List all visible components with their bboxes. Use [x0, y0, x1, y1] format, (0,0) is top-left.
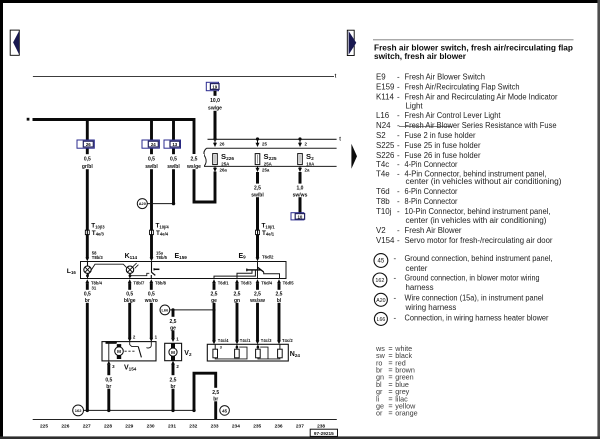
svg-text:bl/ge: bl/ge	[124, 298, 136, 304]
svg-text:t: t	[339, 137, 341, 143]
svg-text:Fresh Air Blower Switch: Fresh Air Blower Switch	[405, 73, 486, 82]
svg-text:or: or	[376, 409, 383, 418]
svg-text:10-Pin Connector, behind instr: 10-Pin Connector, behind instrument pane…	[405, 207, 551, 216]
svg-text:2,5: 2,5	[234, 292, 241, 298]
svg-text:234: 234	[232, 423, 240, 429]
svg-text:2: 2	[133, 335, 136, 340]
svg-text:Fuse 26 in fuse holder: Fuse 26 in fuse holder	[405, 151, 481, 160]
svg-text:sw/bl: sw/bl	[145, 164, 158, 170]
svg-text:Light: Light	[406, 102, 424, 111]
svg-text:T10j/1: T10j/1	[262, 223, 276, 230]
svg-text:N24: N24	[290, 351, 301, 358]
svg-text:harness: harness	[406, 283, 434, 292]
svg-text:24: 24	[151, 142, 156, 147]
svg-text:br: br	[85, 298, 90, 304]
svg-text:E159: E159	[376, 83, 395, 92]
svg-text:br: br	[106, 384, 111, 390]
svg-text:K114: K114	[125, 253, 138, 260]
svg-text:T10j/3: T10j/3	[91, 223, 105, 230]
svg-text:T8b: T8b	[376, 197, 390, 206]
svg-text:10: 10	[297, 214, 302, 219]
svg-text:L16: L16	[376, 111, 390, 120]
svg-text:br: br	[171, 384, 176, 390]
svg-text:center (in vehicles with air c: center (in vehicles with air conditionin…	[406, 216, 547, 225]
svg-text:-: -	[397, 131, 400, 140]
svg-text:-: -	[394, 293, 397, 302]
svg-text:V154: V154	[124, 365, 137, 372]
svg-text:31: 31	[92, 286, 97, 291]
svg-text:V2: V2	[184, 350, 192, 357]
svg-text:225: 225	[40, 423, 48, 429]
svg-text:-: -	[394, 313, 397, 322]
svg-text:19: 19	[212, 85, 217, 90]
svg-text:45: 45	[222, 408, 227, 413]
svg-text:10,0: 10,0	[210, 98, 220, 104]
svg-text:Connection, in wiring harness: Connection, in wiring harness heater blo…	[405, 313, 549, 322]
svg-text:26a: 26a	[220, 168, 228, 173]
svg-text:S226: S226	[376, 151, 395, 160]
svg-text:L66: L66	[377, 317, 386, 323]
svg-text:T8b/5: T8b/5	[156, 255, 168, 260]
svg-text:0,5: 0,5	[148, 292, 155, 298]
svg-text:Fresh Air Blower: Fresh Air Blower	[405, 226, 462, 235]
svg-text:T6d/5: T6d/5	[283, 280, 295, 285]
svg-text:T6d/4: T6d/4	[261, 280, 273, 285]
svg-text:Fresh Air and Recirculating Ai: Fresh Air and Recirculating Air Mode Ind…	[405, 93, 558, 102]
svg-text:wiring harness: wiring harness	[405, 303, 457, 312]
svg-text:T6d/3: T6d/3	[241, 280, 253, 285]
svg-text:-: -	[394, 274, 397, 283]
svg-text:26: 26	[220, 142, 225, 147]
svg-text:V154: V154	[376, 236, 395, 245]
svg-text:-: -	[397, 83, 400, 92]
svg-text:T4e/4: T4e/4	[156, 230, 169, 237]
svg-text:-: -	[397, 93, 400, 102]
svg-text:T4e/3: T4e/3	[92, 230, 105, 237]
svg-text:sw/ws: sw/ws	[293, 192, 308, 198]
svg-text:25a: 25a	[262, 168, 270, 173]
svg-text:T4c/1: T4c/1	[240, 338, 251, 343]
svg-text:Ground connection, behind inst: Ground connection, behind instrument pan…	[405, 254, 553, 263]
svg-text:1: 1	[155, 335, 158, 340]
svg-text:-: -	[397, 226, 400, 235]
svg-text:Wire connection (15a), in inst: Wire connection (15a), in instrument pan…	[405, 293, 544, 302]
svg-text:25A: 25A	[221, 161, 230, 166]
svg-text:232: 232	[189, 423, 197, 429]
svg-text:-: -	[397, 160, 400, 169]
svg-text:229: 229	[125, 423, 133, 429]
svg-text:Fresh Air Blower Series Resist: Fresh Air Blower Series Resistance with …	[405, 121, 558, 130]
svg-text:0,5: 0,5	[105, 378, 112, 384]
svg-text:-: -	[397, 121, 400, 130]
svg-text:1,0: 1,0	[297, 185, 304, 191]
svg-text:=: =	[388, 409, 392, 418]
svg-text:231: 231	[168, 423, 176, 429]
svg-text:-: -	[397, 187, 400, 196]
svg-text:T6d: T6d	[376, 187, 390, 196]
svg-text:L16: L16	[67, 268, 77, 275]
svg-text:T4c/4: T4c/4	[218, 338, 229, 343]
svg-text:br: br	[213, 397, 218, 403]
svg-text:gr/bl: gr/bl	[82, 164, 93, 170]
svg-text:A20: A20	[139, 201, 146, 206]
svg-text:center (in vehicles without a: center (in vehicles without air conditio…	[406, 177, 562, 186]
svg-text:T8b/8: T8b/8	[155, 280, 167, 285]
svg-text:10A: 10A	[306, 161, 315, 166]
svg-text:13: 13	[172, 142, 177, 147]
svg-text:2: 2	[305, 142, 308, 147]
svg-text:-: -	[397, 111, 400, 120]
svg-text:2: 2	[176, 364, 179, 369]
svg-text:0,5: 0,5	[170, 157, 177, 163]
svg-text:0,5: 0,5	[84, 157, 91, 163]
svg-text:T4e/1: T4e/1	[262, 230, 275, 237]
svg-text:T8b/7: T8b/7	[133, 280, 145, 285]
svg-text:227: 227	[83, 423, 91, 429]
svg-text:0,5: 0,5	[84, 292, 91, 298]
svg-text:238: 238	[317, 423, 325, 429]
svg-text:A20: A20	[376, 298, 385, 304]
svg-text:ws/sw: ws/sw	[249, 298, 265, 304]
svg-text:T4c/3: T4c/3	[261, 338, 272, 343]
svg-text:T10j: T10j	[376, 207, 392, 216]
svg-text:26: 26	[86, 142, 91, 147]
svg-text:25: 25	[262, 142, 267, 147]
svg-text:6-Pin Connector: 6-Pin Connector	[405, 187, 458, 196]
svg-text:233: 233	[211, 423, 219, 429]
svg-text:25A: 25A	[264, 161, 273, 166]
svg-text:E9: E9	[376, 73, 386, 82]
svg-text:Servo motor for fresh-/recircu: Servo motor for fresh-/recirculating air…	[405, 236, 553, 245]
svg-text:sw/bl: sw/bl	[167, 164, 180, 170]
svg-text:-: -	[394, 254, 397, 263]
svg-text:230: 230	[147, 423, 155, 429]
svg-text:N24: N24	[376, 121, 391, 130]
svg-text:S225: S225	[376, 141, 395, 150]
svg-text:gn: gn	[234, 298, 240, 304]
svg-text:-: -	[397, 236, 400, 245]
svg-text:T6d/1: T6d/1	[218, 280, 230, 285]
svg-text:8-Pin Connector: 8-Pin Connector	[405, 197, 458, 206]
svg-text:K114: K114	[376, 93, 394, 102]
svg-text:236: 236	[275, 423, 283, 429]
svg-text:T4c: T4c	[376, 160, 389, 169]
svg-text:V2: V2	[376, 226, 386, 235]
svg-text:-: -	[397, 197, 400, 206]
svg-text:ws/ge: ws/ge	[186, 164, 201, 170]
svg-text:bl: bl	[277, 298, 282, 304]
svg-text:2,5: 2,5	[191, 157, 198, 163]
svg-text:Fresh Air/Recirculating Flap S: Fresh Air/Recirculating Flap Switch	[405, 83, 520, 92]
svg-text:E159: E159	[175, 253, 188, 260]
svg-text:sw/bl: sw/bl	[251, 192, 264, 198]
svg-text:ge: ge	[170, 326, 176, 332]
svg-text:Fuse 2 in fuse holder: Fuse 2 in fuse holder	[405, 131, 476, 140]
svg-text:2,5: 2,5	[170, 319, 177, 325]
svg-text:t: t	[335, 73, 337, 79]
svg-text:0,5: 0,5	[148, 157, 155, 163]
svg-text:228: 228	[104, 423, 112, 429]
svg-text:237: 237	[296, 423, 304, 429]
svg-text:2,5: 2,5	[211, 292, 218, 298]
svg-text:1: 1	[176, 336, 179, 341]
svg-text:97-29215: 97-29215	[314, 431, 334, 436]
svg-text:45: 45	[378, 259, 385, 265]
svg-text:2,5: 2,5	[254, 185, 261, 191]
svg-text:2,5: 2,5	[170, 378, 177, 384]
svg-text:T4c/2: T4c/2	[282, 338, 293, 343]
svg-text:ws/ro: ws/ro	[144, 298, 158, 304]
svg-text:E9: E9	[239, 253, 247, 260]
svg-text:S2: S2	[376, 131, 386, 140]
svg-text:235: 235	[253, 423, 261, 429]
svg-text:2,5: 2,5	[254, 292, 261, 298]
svg-text:T10j/4: T10j/4	[156, 223, 170, 230]
svg-text:-: -	[397, 73, 400, 82]
svg-text:3: 3	[220, 346, 222, 350]
svg-text:2,5: 2,5	[212, 390, 219, 396]
svg-text:center: center	[406, 264, 428, 273]
svg-text:Ground connection, in blower m: Ground connection, in blower motor wirin…	[405, 274, 540, 283]
svg-text:Fuse 25 in fuse holder: Fuse 25 in fuse holder	[405, 141, 481, 150]
svg-text:M: M	[117, 349, 121, 354]
svg-text:226: 226	[61, 423, 69, 429]
svg-text:T4e: T4e	[376, 169, 390, 178]
svg-text:4-Pin Connector: 4-Pin Connector	[405, 160, 458, 169]
svg-text:3: 3	[112, 364, 115, 369]
svg-text:M: M	[171, 350, 175, 355]
svg-text:162: 162	[375, 278, 384, 284]
svg-text:ge: ge	[211, 298, 217, 304]
svg-text:T8b/3: T8b/3	[92, 255, 104, 260]
svg-text:orange: orange	[395, 409, 417, 418]
svg-text:2a: 2a	[305, 168, 310, 173]
svg-text:-: -	[397, 141, 400, 150]
svg-text:-: -	[397, 207, 400, 216]
svg-text:switch, fresh air blower: switch, fresh air blower	[374, 51, 467, 61]
svg-text:0,5: 0,5	[126, 292, 133, 298]
svg-text:2,5: 2,5	[276, 292, 283, 298]
svg-text:162: 162	[75, 408, 82, 413]
svg-text:sw/ge: sw/ge	[208, 106, 222, 112]
svg-text:T6d/2: T6d/2	[262, 254, 274, 259]
svg-text:-: -	[397, 151, 400, 160]
svg-text:L66: L66	[162, 308, 170, 313]
svg-text:Fresh Air Control Lever Light: Fresh Air Control Lever Light	[405, 111, 502, 120]
svg-text:-: -	[397, 169, 400, 178]
